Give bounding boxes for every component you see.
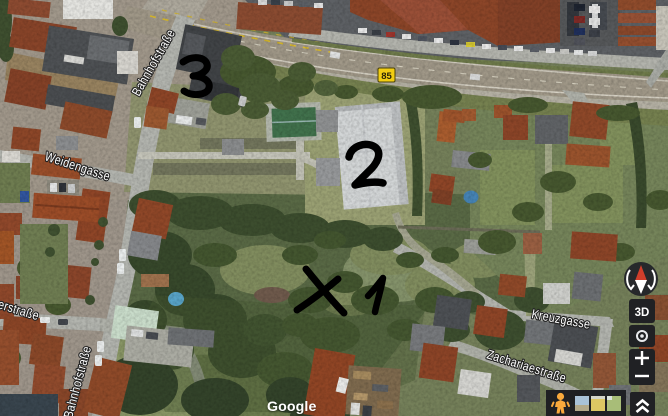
svg-text:3D: 3D	[635, 307, 650, 319]
svg-text:85: 85	[381, 71, 392, 82]
svg-text:Google: Google	[267, 399, 316, 415]
